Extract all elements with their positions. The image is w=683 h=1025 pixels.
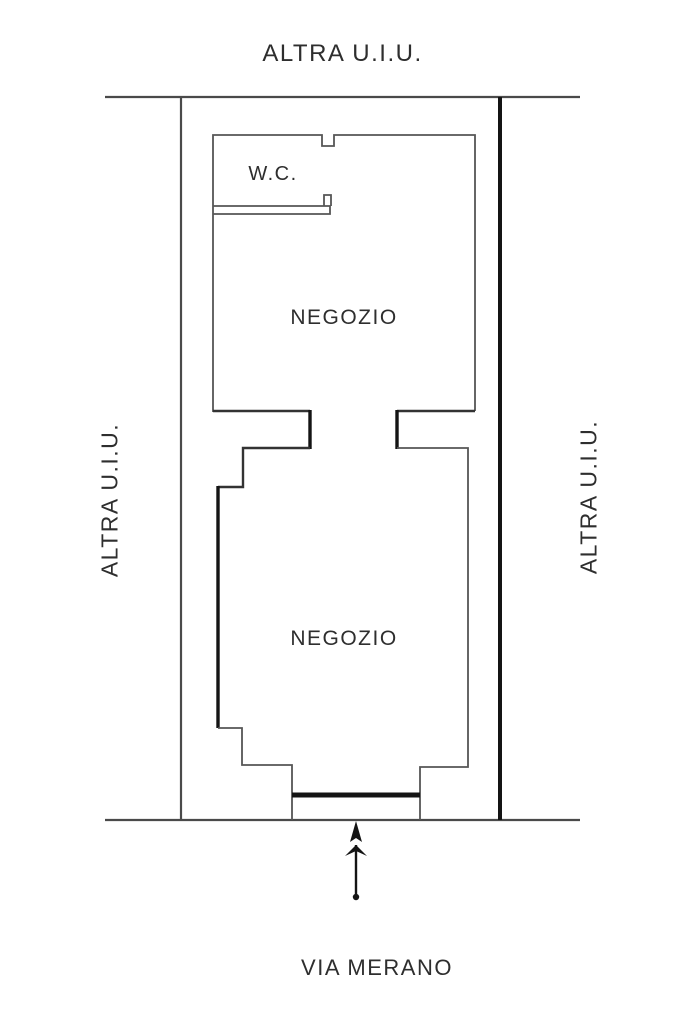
adjacent-unit-label-left: ALTRA U.I.U.	[97, 423, 124, 577]
wc-door-jamb	[324, 195, 331, 206]
room-label-negozio-lower: NEGOZIO	[213, 627, 475, 651]
lower-room-step-left	[218, 448, 310, 487]
street-label: VIA MERANO	[247, 955, 507, 981]
lower-room-bottom-left-steps	[218, 728, 292, 820]
floor-plan-canvas: ALTRA U.I.U. ALTRA U.I.U. ALTRA U.I.U. W…	[0, 0, 683, 1025]
wc-partition-wall	[213, 206, 330, 214]
adjacent-unit-label-right: ALTRA U.I.U.	[576, 420, 603, 574]
adjacent-unit-label-top: ALTRA U.I.U.	[105, 40, 580, 68]
entrance-arrow-icon	[345, 821, 367, 900]
entrance-arrow-tail	[353, 894, 359, 900]
room-label-negozio-upper: NEGOZIO	[213, 306, 475, 330]
entrance-arrow-head	[350, 821, 362, 842]
room-label-wc: W.C.	[213, 163, 333, 186]
